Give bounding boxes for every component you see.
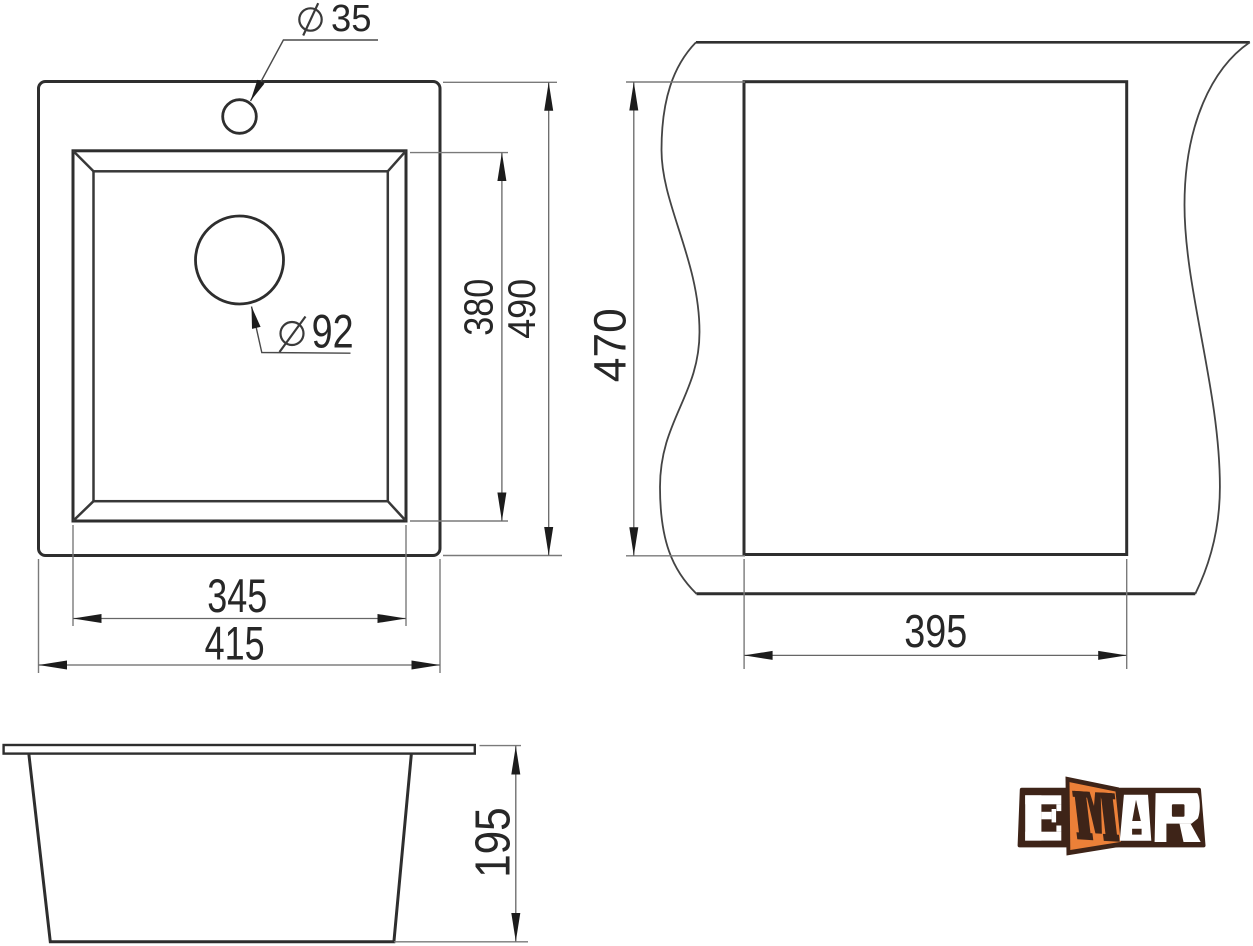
svg-text:345: 345 — [207, 569, 267, 622]
svg-text:470: 470 — [585, 308, 636, 382]
svg-text:380: 380 — [455, 279, 501, 336]
svg-text:35: 35 — [331, 0, 372, 40]
svg-text:395: 395 — [904, 605, 967, 657]
svg-text:415: 415 — [205, 617, 265, 670]
svg-text:195: 195 — [466, 807, 521, 877]
svg-text:490: 490 — [501, 279, 544, 339]
svg-text:92: 92 — [312, 304, 354, 357]
